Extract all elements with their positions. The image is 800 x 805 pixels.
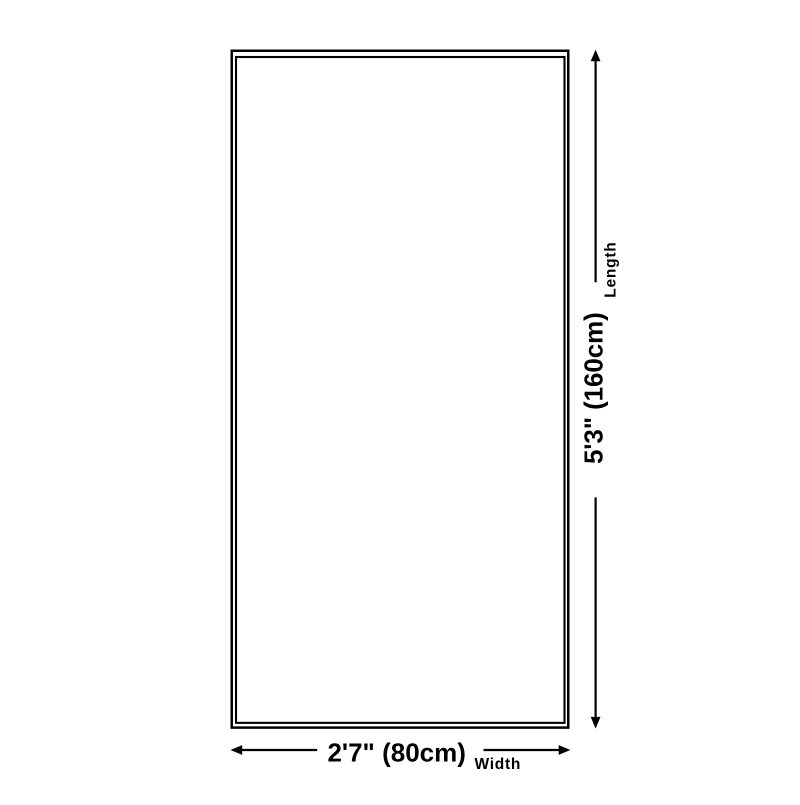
svg-text:5'3" (160cm): 5'3" (160cm) xyxy=(578,312,608,464)
svg-text:2'7" (80cm): 2'7" (80cm) xyxy=(327,738,465,768)
svg-text:Width: Width xyxy=(475,756,522,773)
svg-text:Length: Length xyxy=(602,242,619,298)
